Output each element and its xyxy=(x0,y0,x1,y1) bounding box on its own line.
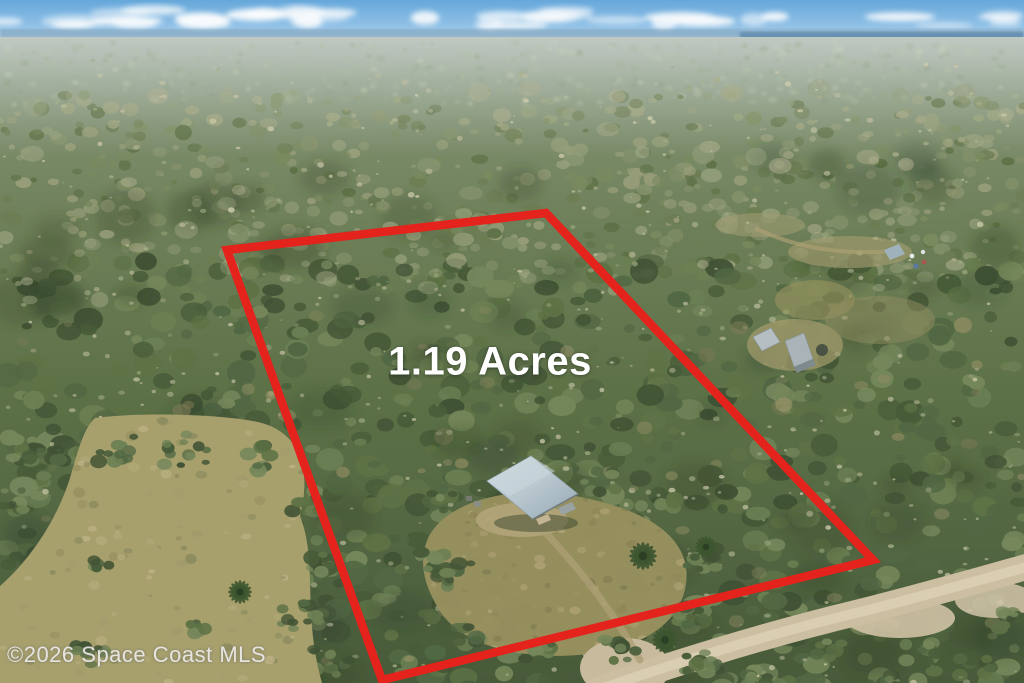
neighbor-grass-patch xyxy=(715,213,805,237)
vehicle-speck xyxy=(913,263,918,268)
neighbor-grass-patch xyxy=(825,296,935,344)
vehicle-speck xyxy=(922,260,927,265)
acreage-label: 1.19 Acres xyxy=(388,339,592,384)
vehicle-speck xyxy=(921,250,925,254)
neighbor-tree xyxy=(816,344,828,356)
vehicle-speck xyxy=(910,254,915,259)
yard-item xyxy=(474,501,481,507)
listing-photo: 1.19 Acres ©2026 Space Coast MLS xyxy=(0,0,1024,683)
mls-watermark: ©2026 Space Coast MLS xyxy=(7,642,266,668)
yard-item xyxy=(466,496,472,501)
